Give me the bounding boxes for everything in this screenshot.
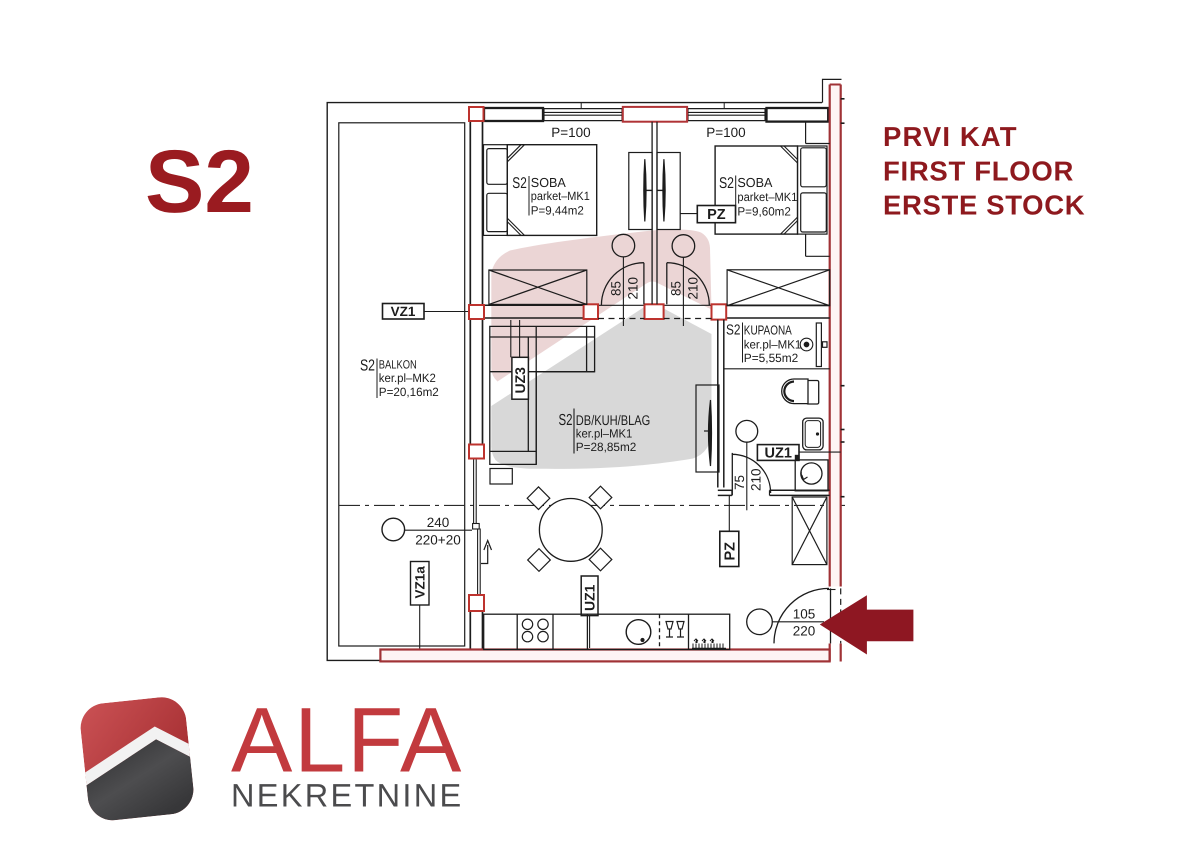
svg-text:210: 210 [626, 277, 641, 300]
svg-text:UZ1: UZ1 [582, 584, 598, 611]
svg-text:parket–MK1: parket–MK1 [531, 189, 590, 203]
svg-text:ERSTE STOCK: ERSTE STOCK [883, 190, 1085, 221]
svg-text:S2: S2 [145, 131, 254, 231]
svg-text:P=100: P=100 [551, 125, 590, 140]
svg-text:85: 85 [669, 281, 684, 296]
svg-text:S2: S2 [726, 323, 741, 339]
svg-text:KUPAONA: KUPAONA [744, 323, 792, 338]
svg-text:ALFA: ALFA [231, 690, 463, 792]
svg-text:VZ1: VZ1 [391, 304, 416, 319]
svg-text:PZ: PZ [723, 542, 739, 561]
svg-text:NEKRETNINE: NEKRETNINE [231, 778, 463, 814]
svg-text:S2: S2 [512, 175, 527, 192]
svg-text:PZ: PZ [707, 207, 726, 223]
svg-text:ker.pl–MK1: ker.pl–MK1 [576, 427, 633, 441]
svg-text:S2: S2 [559, 412, 573, 429]
svg-text:VZ1a: VZ1a [413, 566, 428, 599]
svg-text:SOBA: SOBA [737, 175, 772, 190]
svg-text:SOBA: SOBA [531, 175, 566, 190]
svg-text:UZ1: UZ1 [764, 446, 791, 462]
svg-text:S2: S2 [719, 175, 734, 192]
svg-text:BALKON: BALKON [379, 358, 417, 372]
svg-text:85: 85 [609, 281, 624, 296]
svg-text:P=9,44m2: P=9,44m2 [531, 204, 584, 218]
svg-text:S2: S2 [360, 358, 375, 375]
svg-text:P=28,85m2: P=28,85m2 [576, 440, 637, 454]
svg-text:240: 240 [427, 515, 450, 530]
svg-text:P=9,60m2: P=9,60m2 [737, 205, 791, 219]
svg-text:ker.pl–MK1: ker.pl–MK1 [744, 338, 802, 352]
svg-text:P=100: P=100 [706, 125, 745, 140]
svg-text:75: 75 [732, 475, 747, 490]
svg-text:220: 220 [793, 624, 816, 639]
svg-text:210: 210 [749, 468, 764, 491]
svg-text:210: 210 [686, 277, 701, 300]
svg-text:FIRST FLOOR: FIRST FLOOR [883, 156, 1074, 187]
svg-text:PRVI KAT: PRVI KAT [883, 121, 1018, 152]
svg-text:UZ3: UZ3 [512, 367, 528, 394]
svg-text:parket–MK1: parket–MK1 [737, 190, 797, 204]
svg-text:220+20: 220+20 [415, 533, 460, 548]
svg-text:P=5,55m2: P=5,55m2 [744, 351, 799, 365]
svg-text:P=20,16m2: P=20,16m2 [379, 385, 439, 399]
svg-text:105: 105 [793, 607, 816, 622]
svg-text:ker.pl–MK2: ker.pl–MK2 [379, 371, 436, 385]
